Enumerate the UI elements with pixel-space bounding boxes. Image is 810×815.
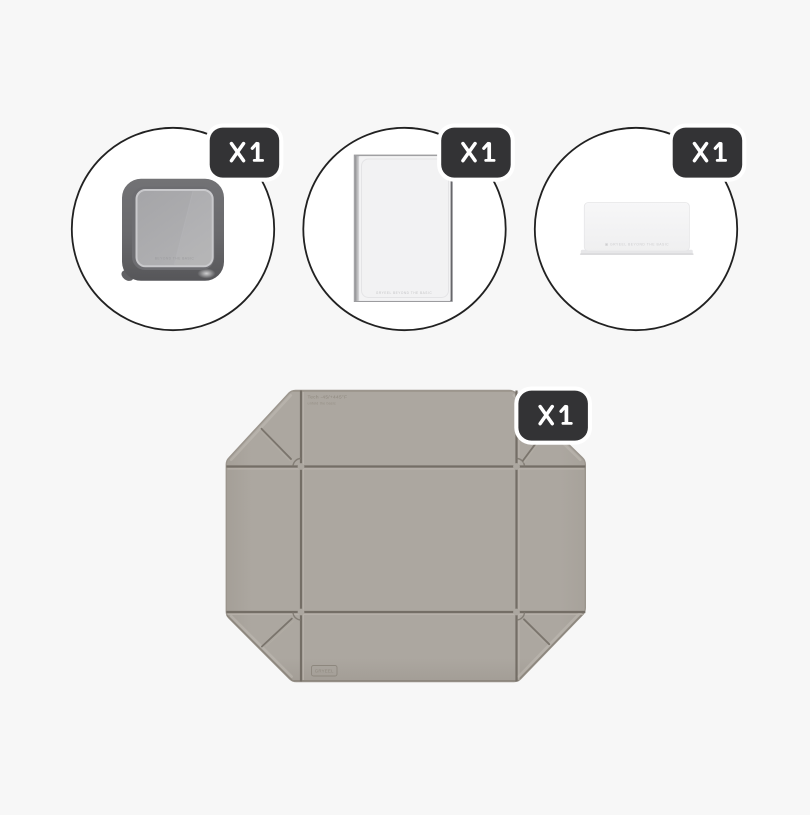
- svg-text:BEYOND THE BASIC: BEYOND THE BASIC: [155, 257, 195, 261]
- svg-text:▣ GRYEEL BEYOND THE BASIC: ▣ GRYEEL BEYOND THE BASIC: [605, 243, 669, 247]
- svg-text:Tech -45/+445°F: Tech -45/+445°F: [308, 395, 348, 401]
- svg-text:GRYEEL: GRYEEL: [315, 669, 334, 674]
- svg-text:unfold the basic: unfold the basic: [308, 402, 336, 406]
- svg-text:GRYEEL BEYOND THE BASIC: GRYEEL BEYOND THE BASIC: [376, 291, 432, 295]
